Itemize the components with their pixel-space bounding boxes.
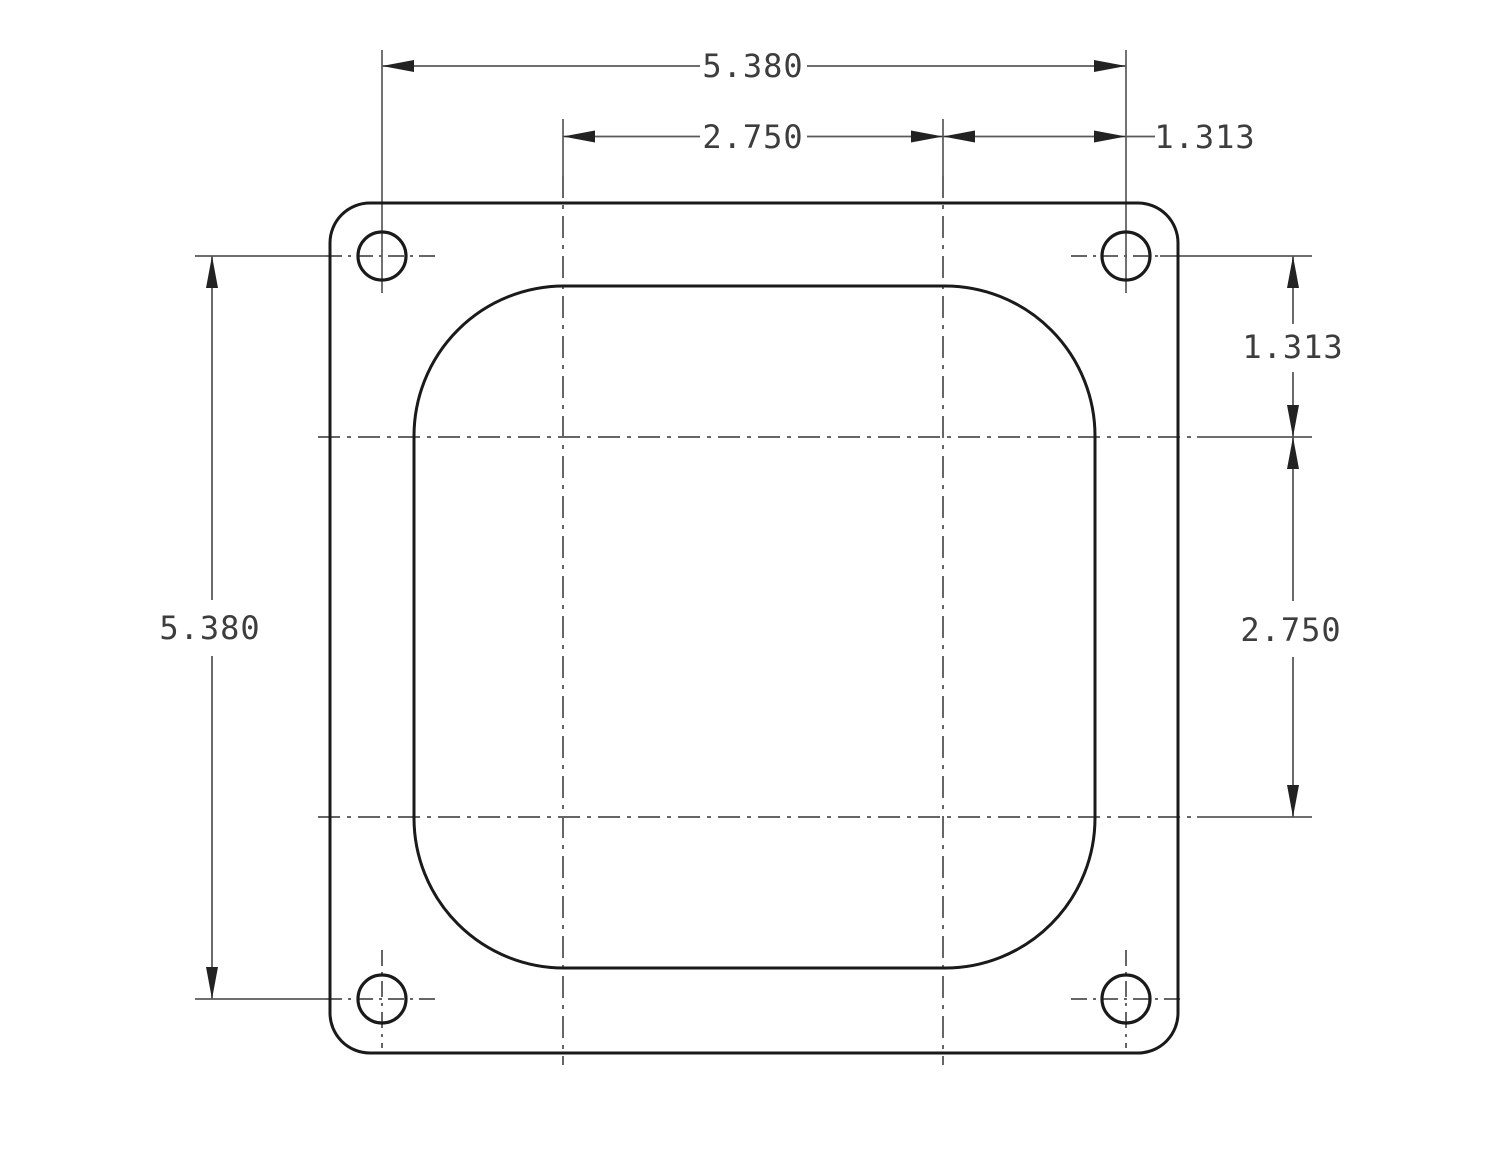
- arrow-top-offset-left: [943, 131, 975, 143]
- arrow-top-offset-right: [1094, 131, 1126, 143]
- arrow-top-overall-right: [1094, 60, 1126, 72]
- bolt-hole-crosshairs: [326, 256, 1183, 1048]
- dimension-lines: [212, 66, 1293, 999]
- label-bore-spacing-horizontal: 2.750: [702, 118, 803, 156]
- arrow-right-offset-top: [1287, 256, 1299, 288]
- label-overall-width: 5.380: [702, 47, 803, 85]
- arrow-right-bore-top: [1287, 437, 1299, 469]
- arrow-left-overall-bottom: [206, 967, 218, 999]
- arrow-top-bore-right: [911, 131, 943, 143]
- arrowheads: [206, 60, 1299, 999]
- flange-geometry: [330, 203, 1178, 1053]
- extension-lines-path: [195, 50, 1312, 999]
- extension-lines: [195, 50, 1312, 999]
- arrow-top-bore-left: [563, 131, 595, 143]
- arrow-right-offset-bottom: [1287, 405, 1299, 437]
- label-overall-height: 5.380: [159, 609, 260, 647]
- label-bore-spacing-vertical: 2.750: [1240, 611, 1341, 649]
- centerlines: [318, 176, 1193, 1065]
- label-bolt-offset-horizontal: 1.313: [1154, 118, 1255, 156]
- technical-drawing-page: 5.380 2.750 1.313 5.380 1.313 2.750: [0, 0, 1500, 1154]
- dimension-labels: 5.380 2.750 1.313 5.380 1.313 2.750: [159, 47, 1343, 649]
- arrow-right-bore-bottom: [1287, 785, 1299, 817]
- arrow-top-overall-left: [382, 60, 414, 72]
- throttle-bore-outline: [414, 286, 1095, 968]
- flange-dimension-drawing: 5.380 2.750 1.313 5.380 1.313 2.750: [0, 0, 1500, 1154]
- arrow-left-overall-top: [206, 256, 218, 288]
- label-bolt-offset-vertical: 1.313: [1242, 328, 1343, 366]
